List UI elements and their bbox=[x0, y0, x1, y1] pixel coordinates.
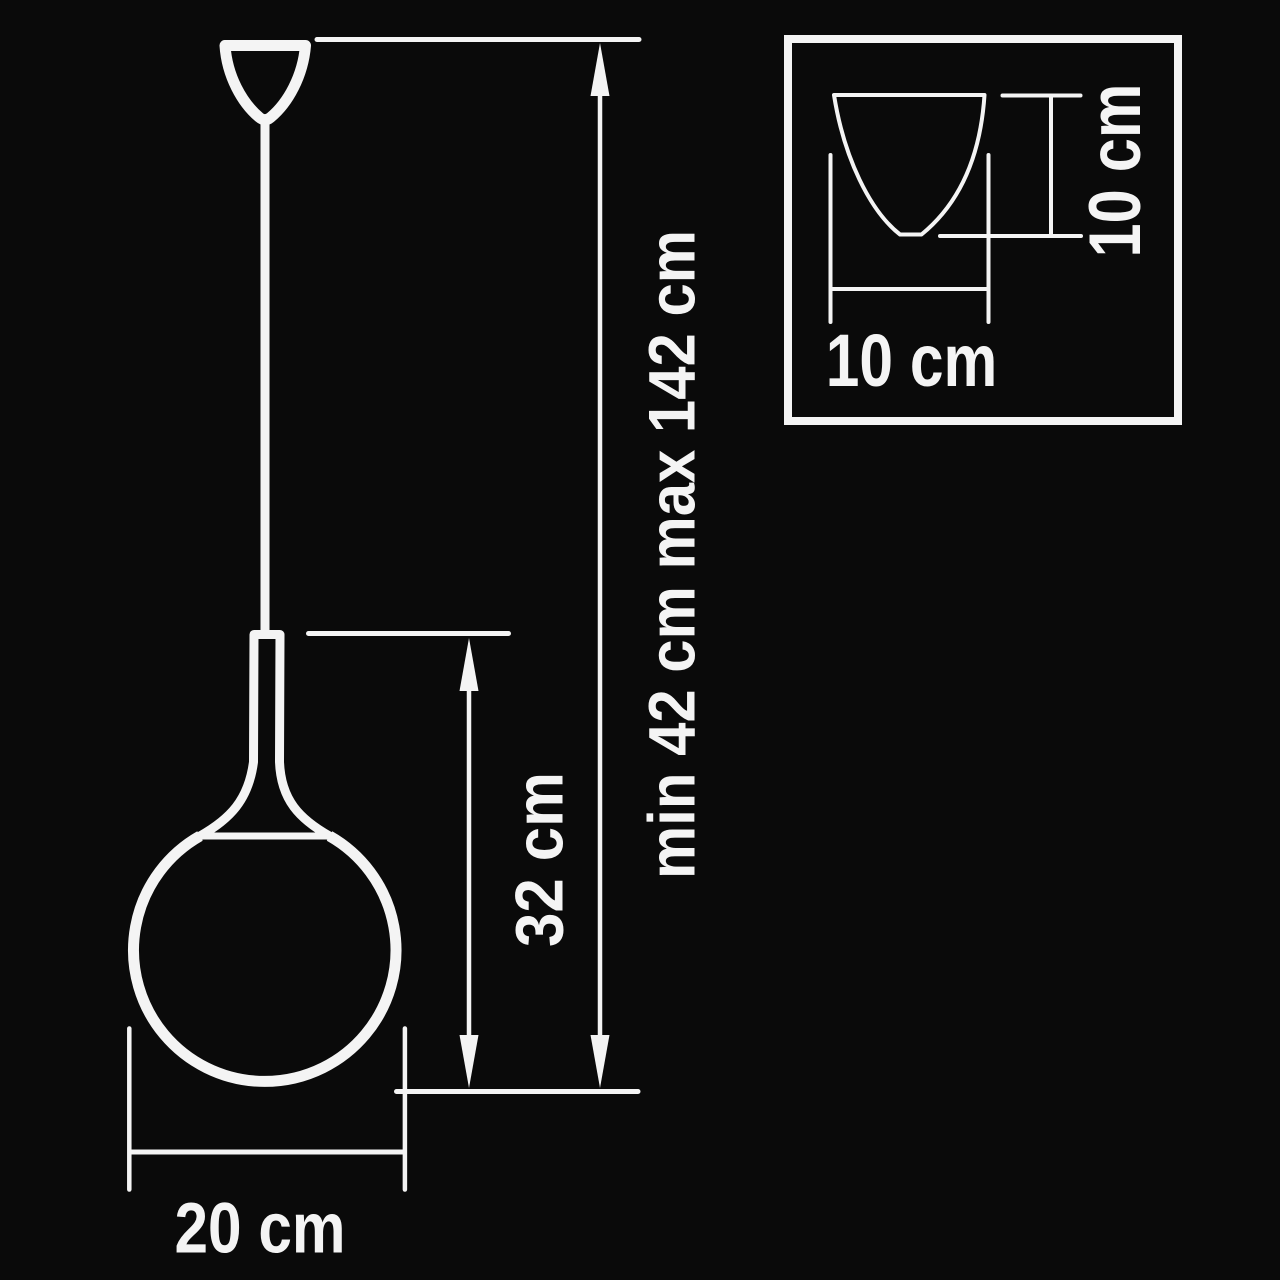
svg-text:min 42 cm max 142 cm: min 42 cm max 142 cm bbox=[635, 230, 709, 879]
svg-text:32 cm: 32 cm bbox=[502, 772, 578, 947]
svg-text:10 cm: 10 cm bbox=[1075, 84, 1156, 258]
svg-text:10 cm: 10 cm bbox=[826, 319, 998, 402]
svg-text:20 cm: 20 cm bbox=[175, 1190, 346, 1269]
